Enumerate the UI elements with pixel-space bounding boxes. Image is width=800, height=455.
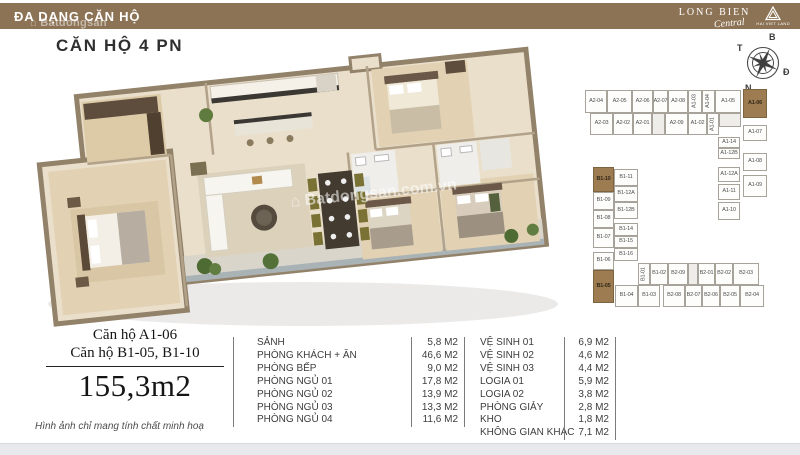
- unit-cell-a1-07: A1-07: [743, 125, 767, 141]
- unit-cell-b2-01: B2-01: [698, 263, 715, 285]
- room-name: PHÒNG NGỦ 04: [257, 414, 411, 427]
- room-name: LOGIA 02: [480, 389, 564, 402]
- room-name: PHÒNG NGỦ 02: [257, 389, 411, 402]
- unit-cell-b2-03: B2-03: [733, 263, 759, 285]
- unit-cell-b2-07: B2-07: [685, 285, 702, 307]
- brand-wordmark: LONG BIEN Central: [679, 4, 751, 28]
- unit-cell-b2-04: B2-04: [740, 285, 764, 307]
- room-area: 4,6 M2: [565, 350, 615, 363]
- room-area: 6,9 M2: [565, 337, 615, 350]
- disclaimer-text: Hình ảnh chỉ mang tính chất minh hoạ: [35, 421, 204, 432]
- unit-cell-b1-11: B1-11: [614, 169, 638, 186]
- room-area: 5,9 M2: [565, 376, 615, 389]
- vertical-divider: [233, 337, 234, 427]
- unit-cell-a2-03: A2-03: [590, 113, 613, 135]
- room-name: PHÒNG KHÁCH + ĂN: [257, 350, 411, 363]
- unit-cell-b2-08: B2-08: [663, 285, 685, 307]
- unit-cell-a1-04: A1-04: [702, 90, 715, 113]
- unit-cell-b1-04: B1-04: [615, 285, 638, 307]
- room-names-column: VỆ SINH 01VỆ SINH 02VỆ SINH 03LOGIA 01LO…: [480, 337, 564, 440]
- unit-cell-a1-03: A1-03: [688, 90, 702, 113]
- room-area: 7,1 M2: [565, 427, 615, 440]
- header-watermark: ⌂ Batdongsan: [30, 17, 107, 29]
- room-area: 17,8 M2: [412, 376, 464, 389]
- total-area: 155,3m2: [40, 368, 230, 404]
- room-area: 46,6 M2: [412, 350, 464, 363]
- unit-cell-b1-14: B1-14: [614, 223, 638, 236]
- unit-info-line2: Căn hộ B1-05, B1-10: [40, 344, 230, 362]
- unit-cell-a2-05: A2-05: [607, 90, 632, 113]
- unit-cell-b2-09: B2-09: [668, 263, 688, 285]
- unit-cell-a1-09: A1-09: [743, 175, 767, 197]
- room-name: PHÒNG GIẢY: [480, 402, 564, 415]
- unit-cell-a1-05: A1-05: [715, 90, 741, 113]
- unit-core-cell: [688, 263, 698, 285]
- room-name: PHÒNG NGỦ 01: [257, 376, 411, 389]
- room-names-column: SẢNHPHÒNG KHÁCH + ĂNPHÒNG BẾPPHÒNG NGỦ 0…: [257, 337, 411, 427]
- unit-cell-b1-12a: B1-12A: [614, 186, 638, 202]
- room-area: 11,6 M2: [412, 414, 464, 427]
- unit-cell-a2-01: A2-01: [633, 113, 652, 135]
- unit-core-cell: [652, 113, 665, 135]
- room-area: 9,0 M2: [412, 363, 464, 376]
- unit-cell-a1-02: A1-02: [688, 113, 707, 135]
- unit-info-line1: Căn hộ A1-06: [40, 326, 230, 344]
- room-area: 13,9 M2: [412, 389, 464, 402]
- compass-east-label: Đ: [783, 67, 790, 77]
- room-area: 13,3 M2: [412, 402, 464, 415]
- room-area: 3,8 M2: [565, 389, 615, 402]
- room-name: VỆ SINH 02: [480, 350, 564, 363]
- room-name: KHÔNG GIAN KHÁC: [480, 427, 564, 440]
- unit-cell-a1-12a: A1-12A: [718, 167, 740, 182]
- unit-cell-b1-15: B1-15: [614, 236, 638, 248]
- unit-cell-a2-04: A2-04: [585, 90, 607, 113]
- unit-cell-b1-12b: B1-12B: [614, 202, 638, 219]
- room-name: KHO: [480, 414, 564, 427]
- room-area: 1,8 M2: [565, 414, 615, 427]
- unit-cell-b1-02: B1-02: [650, 263, 668, 285]
- room-name: SẢNH: [257, 337, 411, 350]
- room-area: 4,4 M2: [565, 363, 615, 376]
- room-name: VỆ SINH 01: [480, 337, 564, 350]
- unit-cell-b2-06: B2-06: [702, 285, 720, 307]
- unit-cell-b1-08: B1-08: [593, 210, 614, 228]
- brand-script: Central: [714, 18, 745, 30]
- room-area: 2,8 M2: [565, 402, 615, 415]
- room-name: LOGIA 01: [480, 376, 564, 389]
- room-area: 5,8 M2: [412, 337, 464, 350]
- room-name: PHÒNG BẾP: [257, 363, 411, 376]
- room-areas-column: 6,9 M24,6 M24,4 M25,9 M23,8 M22,8 M21,8 …: [564, 337, 616, 440]
- unit-cell-b1-06: B1-06: [593, 252, 614, 270]
- compass-north-label: B: [769, 32, 776, 42]
- unit-cell-a2-08: A2-08: [668, 90, 688, 113]
- room-areas-table-left: SẢNHPHÒNG KHÁCH + ĂNPHÒNG BẾPPHÒNG NGỦ 0…: [257, 337, 465, 427]
- unit-core-cell: [719, 113, 741, 127]
- info-rule: [46, 366, 224, 367]
- unit-cell-b1-07: B1-07: [593, 228, 614, 248]
- floorplan-3d-render: ⌂ Batdongsan.com.vn: [28, 46, 568, 336]
- unit-cell-b2-05: B2-05: [720, 285, 740, 307]
- unit-info: Căn hộ A1-06 Căn hộ B1-05, B1-10 155,3m2: [40, 326, 230, 404]
- brand-triangle-icon: HAI VIET LAND: [756, 6, 790, 26]
- unit-cell-b1-03: B1-03: [638, 285, 660, 307]
- unit-cell-a1-11: A1-11: [718, 184, 740, 200]
- brand-tagline: HAI VIET LAND: [756, 21, 790, 26]
- unit-cell-a1-10: A1-10: [718, 202, 740, 220]
- brochure-page: ĐA DẠNG CĂN HỘ ⌂ Batdongsan LONG BIEN Ce…: [0, 0, 800, 455]
- unit-location-map: A2-04A2-05A2-06A2-07A2-08A1-03A1-04A1-05…: [562, 85, 800, 315]
- unit-cell-a2-02: A2-02: [613, 113, 633, 135]
- header-bar: ĐA DẠNG CĂN HỘ ⌂ Batdongsan LONG BIEN Ce…: [0, 3, 800, 29]
- unit-cell-a1-14: A1-14: [718, 137, 740, 148]
- room-name: VỆ SINH 03: [480, 363, 564, 376]
- unit-cell-a1-01: A1-01: [707, 113, 719, 135]
- unit-cell-a2-06: A2-06: [632, 90, 653, 113]
- unit-cell-a2-07: A2-07: [653, 90, 668, 113]
- unit-cell-b1-05: B1-05: [593, 270, 614, 303]
- unit-cell-b2-02: B2-02: [715, 263, 733, 285]
- triangle-icon: [765, 6, 781, 21]
- unit-cell-a1-12b: A1-12B: [718, 148, 740, 159]
- room-areas-column: 5,8 M246,6 M29,0 M217,8 M213,9 M213,3 M2…: [411, 337, 465, 427]
- unit-cell-b1-10: B1-10: [593, 167, 614, 192]
- room-areas-table-right: VỆ SINH 01VỆ SINH 02VỆ SINH 03LOGIA 01LO…: [480, 337, 616, 440]
- unit-cell-b1-16: B1-16: [614, 248, 638, 261]
- brand-logo: LONG BIEN Central HAI VIET LAND: [679, 4, 790, 28]
- compass-west-label: T: [737, 43, 743, 53]
- room-name: PHÒNG NGỦ 03: [257, 402, 411, 415]
- unit-cell-a1-06: A1-06: [743, 89, 767, 118]
- unit-cell-b1-01: B1-01: [638, 263, 650, 285]
- unit-cell-a2-09: A2-09: [665, 113, 688, 135]
- unit-cell-a1-08: A1-08: [743, 153, 767, 171]
- unit-cell-b1-09: B1-09: [593, 192, 614, 210]
